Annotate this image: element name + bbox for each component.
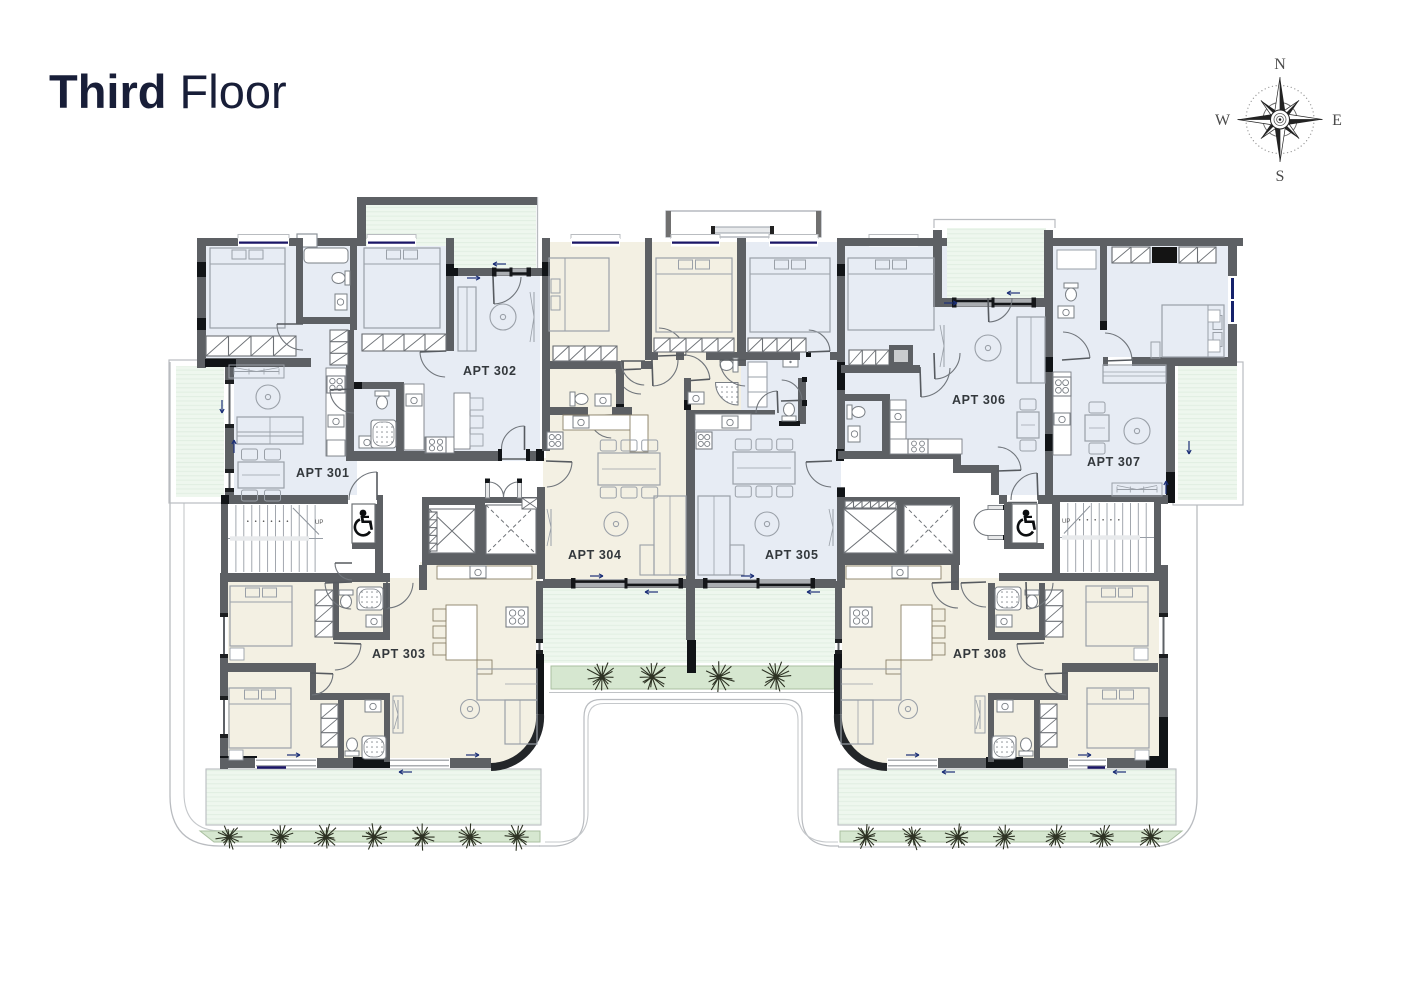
svg-text:UP: UP	[1062, 519, 1070, 525]
svg-text:APT 306: APT 306	[952, 393, 1006, 407]
svg-text:APT 301: APT 301	[296, 466, 350, 480]
svg-text:APT 303: APT 303	[372, 647, 426, 661]
svg-text:APT 307: APT 307	[1087, 455, 1141, 469]
svg-text:Third Floor: Third Floor	[49, 65, 287, 118]
svg-text:W: W	[1215, 112, 1231, 129]
svg-text:UP: UP	[315, 520, 323, 526]
svg-text:APT 304: APT 304	[568, 548, 622, 562]
svg-text:S: S	[1276, 168, 1285, 185]
svg-text:APT 308: APT 308	[953, 647, 1007, 661]
svg-text:E: E	[1332, 112, 1342, 129]
svg-text:APT 302: APT 302	[463, 364, 517, 378]
svg-text:APT 305: APT 305	[765, 548, 819, 562]
svg-text:N: N	[1274, 56, 1286, 73]
